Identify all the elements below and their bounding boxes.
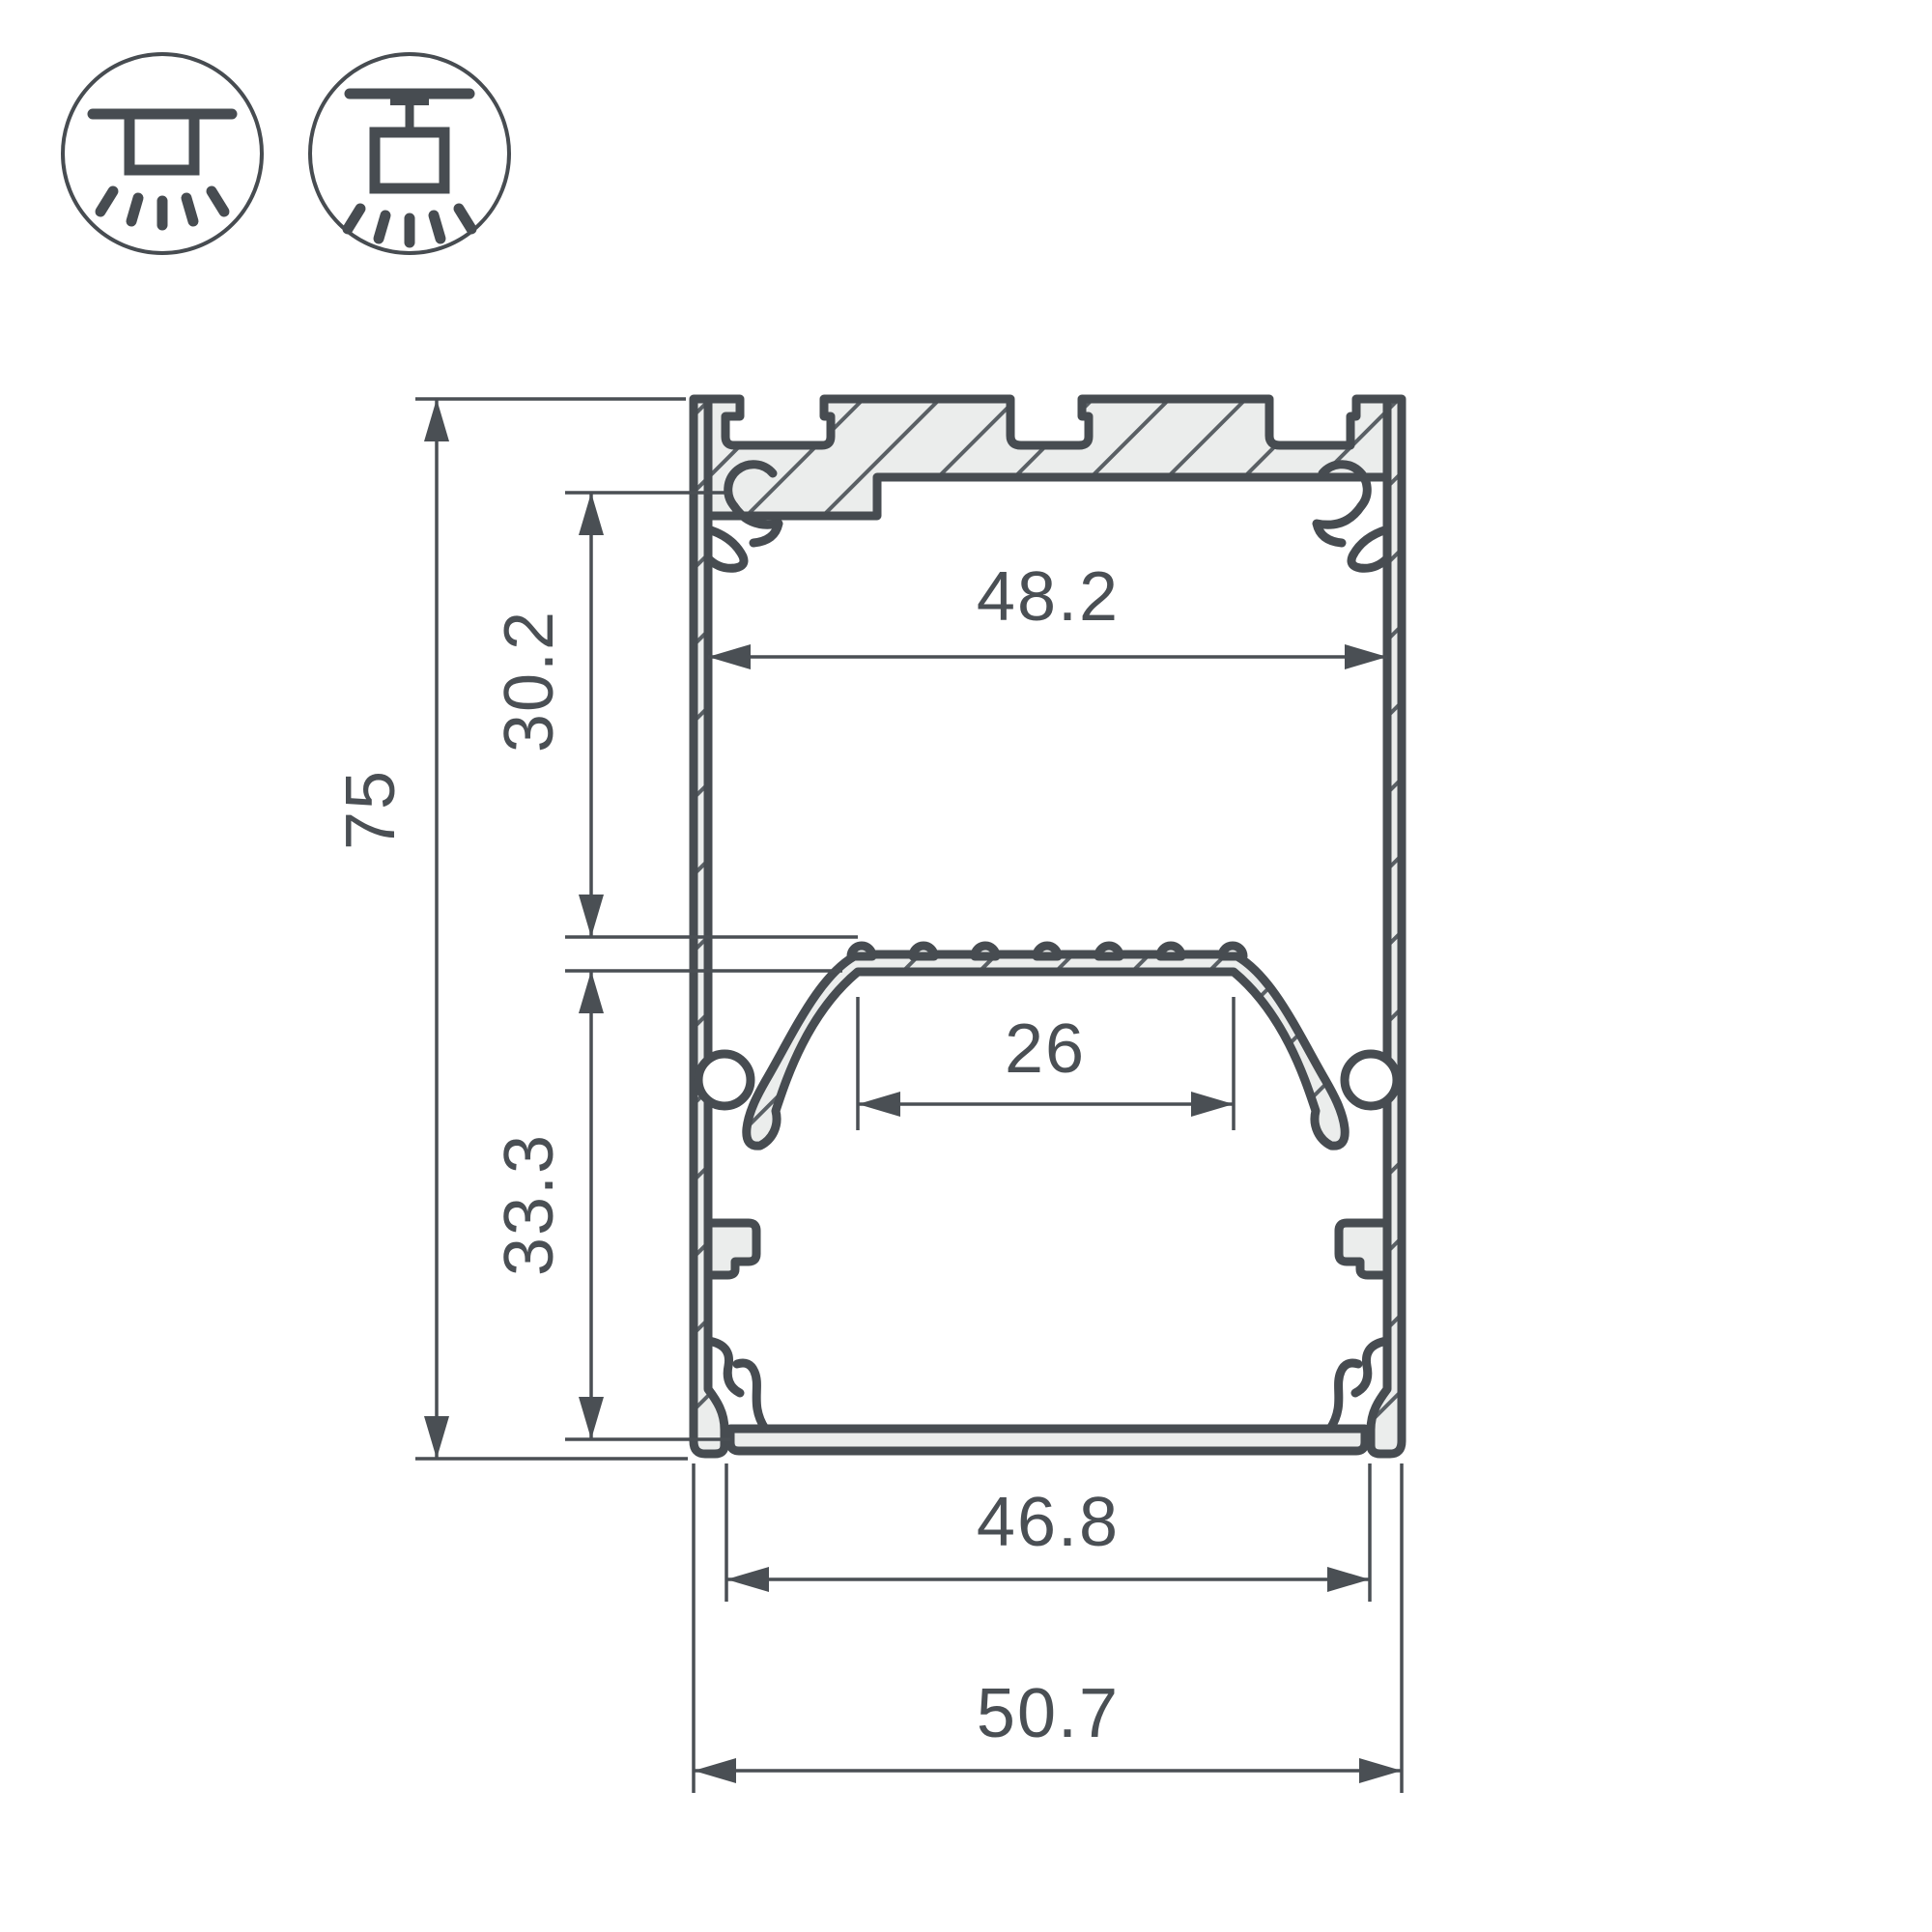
left-wall-features [708, 465, 779, 1429]
arch-ribs [851, 946, 1243, 956]
dimension-annotations: 48.2 26 46.8 50.7 [332, 399, 1402, 1793]
diffuser-plate [730, 1429, 1365, 1451]
dim-led-shelf-width: 26 [858, 997, 1234, 1130]
dim-upper-inner-height: 30.2 [491, 493, 858, 937]
surface-mount-light-icon [63, 54, 262, 253]
dim-label-led-shelf-width: 26 [1005, 1010, 1086, 1088]
dim-label-overall-width: 50.7 [977, 1675, 1120, 1752]
dim-label-overall-height: 75 [332, 769, 410, 850]
dim-inner-width-top: 48.2 [708, 558, 1387, 669]
profile-drawing: 48.2 26 46.8 50.7 [0, 0, 1932, 1932]
pendant-mount-light-icon [310, 54, 509, 253]
dim-overall-height: 75 [332, 399, 688, 1459]
dim-label-inner-width-top: 48.2 [977, 558, 1120, 636]
profile-cross-section [694, 399, 1402, 1454]
right-screw-boss [1345, 1054, 1397, 1106]
top-plate [708, 399, 1387, 516]
right-wall-features [1317, 465, 1387, 1429]
dim-label-upper-inner-height: 30.2 [491, 610, 568, 753]
dim-label-lower-inner-height: 33.3 [491, 1133, 568, 1276]
dim-bottom-opening-width: 46.8 [726, 1463, 1370, 1602]
dim-label-bottom-opening-width: 46.8 [977, 1484, 1120, 1561]
left-screw-boss [698, 1054, 751, 1106]
